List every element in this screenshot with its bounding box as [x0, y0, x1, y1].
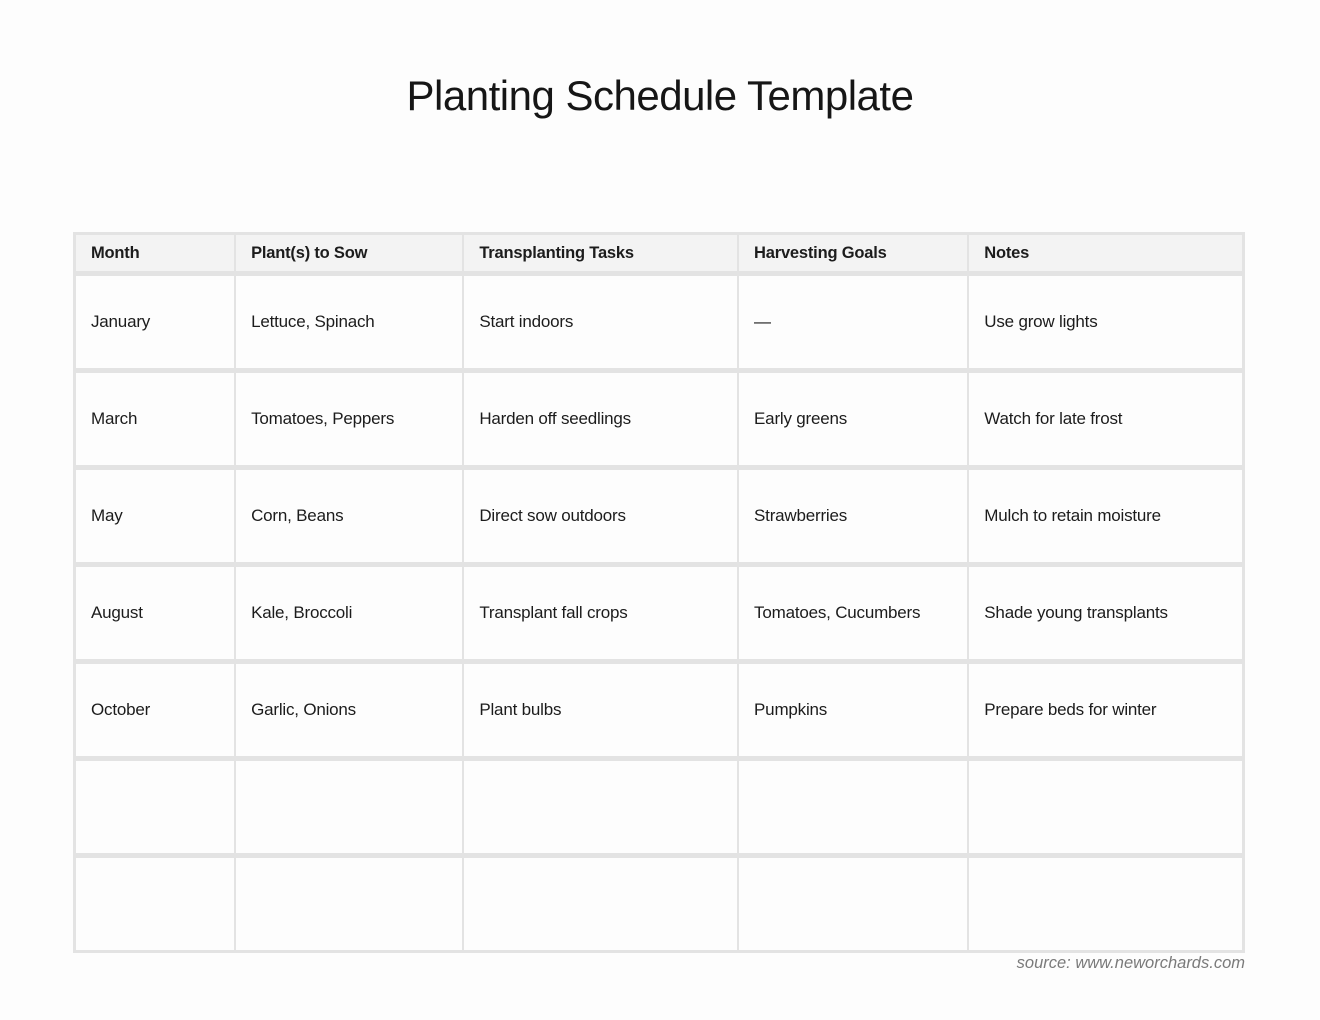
table-cell: Use grow lights	[969, 276, 1242, 368]
column-header: Month	[76, 235, 234, 271]
table-cell: Transplant fall crops	[464, 567, 737, 659]
table-cell: October	[76, 664, 234, 756]
table-cell: Harden off seedlings	[464, 373, 737, 465]
table-cell: —	[739, 276, 967, 368]
table-cell: January	[76, 276, 234, 368]
table-cell: Pumpkins	[739, 664, 967, 756]
table-cell: Tomatoes, Cucumbers	[739, 567, 967, 659]
column-header: Transplanting Tasks	[464, 235, 737, 271]
table-cell	[236, 761, 462, 853]
table-cell: Strawberries	[739, 470, 967, 562]
table-cell: Early greens	[739, 373, 967, 465]
table-cell	[464, 761, 737, 853]
table-cell	[76, 858, 234, 950]
table-cell: May	[76, 470, 234, 562]
table-cell	[76, 761, 234, 853]
table-cell: Tomatoes, Peppers	[236, 373, 462, 465]
table-cell: Mulch to retain moisture	[969, 470, 1242, 562]
table-cell: Shade young transplants	[969, 567, 1242, 659]
page-title: Planting Schedule Template	[0, 72, 1320, 120]
table-cell: Start indoors	[464, 276, 737, 368]
table-cell	[969, 761, 1242, 853]
column-header: Notes	[969, 235, 1242, 271]
column-header: Plant(s) to Sow	[236, 235, 462, 271]
planting-schedule-table: MonthPlant(s) to SowTransplanting TasksH…	[73, 232, 1245, 953]
table-cell: Lettuce, Spinach	[236, 276, 462, 368]
table-cell: Kale, Broccoli	[236, 567, 462, 659]
table-cell: Garlic, Onions	[236, 664, 462, 756]
document-page: Planting Schedule Template MonthPlant(s)…	[0, 72, 1320, 1020]
table-cell	[739, 858, 967, 950]
column-header: Harvesting Goals	[739, 235, 967, 271]
table-cell	[464, 858, 737, 950]
table-cell: August	[76, 567, 234, 659]
table-cell: Plant bulbs	[464, 664, 737, 756]
table-cell: Corn, Beans	[236, 470, 462, 562]
source-note: source: www.neworchards.com	[73, 954, 1245, 973]
table-cell: Watch for late frost	[969, 373, 1242, 465]
table-cell: March	[76, 373, 234, 465]
table-cell	[739, 761, 967, 853]
table-wrapper: MonthPlant(s) to SowTransplanting TasksH…	[73, 232, 1245, 953]
table-cell: Direct sow outdoors	[464, 470, 737, 562]
table-cell	[236, 858, 462, 950]
table-cell: Prepare beds for winter	[969, 664, 1242, 756]
table-cell	[969, 858, 1242, 950]
